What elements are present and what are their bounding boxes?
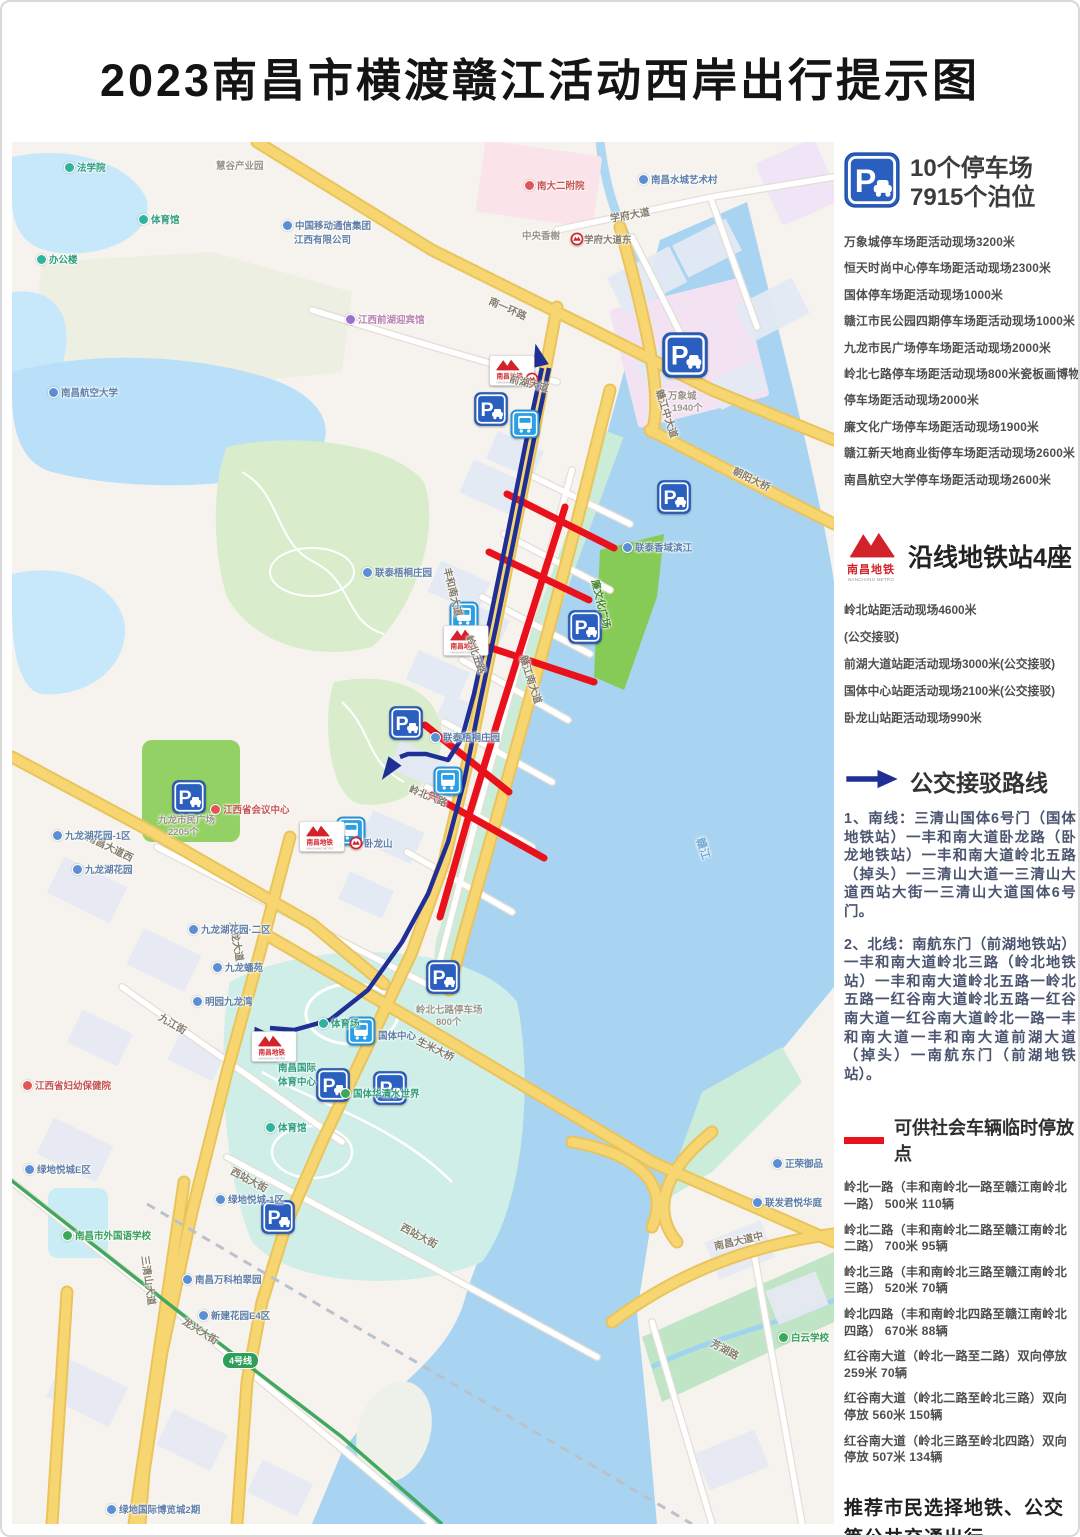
poi-dot-icon — [64, 162, 75, 173]
landmark-label: 九龙湖花园 — [72, 862, 133, 876]
poi-dot-icon — [345, 314, 356, 325]
temp-parking-item: 岭北一路（丰和南岭北一路至赣江南岭北一路） 500米 110辆 — [844, 1179, 1076, 1212]
landmark-label: 联泰梧桐庄园 — [362, 565, 432, 579]
parking-list-item: 九龙市民广场停车场距活动现场2000米 — [844, 335, 1076, 361]
temp-parking-item: 岭北二路（丰和南岭北二路至赣江南岭北二路） 700米 95辆 — [844, 1222, 1076, 1255]
parking-list-item: 赣江新天地商业街停车场距活动现场2600米 — [844, 440, 1076, 466]
bus-section: 公交接驳路线 1、南线：三清山国体6号门（国体地铁站）一丰和南大道卧龙路（卧龙地… — [844, 764, 1076, 1084]
red-line-icon — [844, 1137, 884, 1144]
metro-line-badge: 4号线 — [222, 1352, 259, 1369]
svg-text:P: P — [671, 341, 689, 371]
map-parking-icon: P — [426, 960, 460, 999]
svg-text:南昌地铁: 南昌地铁 — [307, 837, 334, 846]
landmark-label: 白云学校 — [778, 1330, 829, 1344]
landmark-label: 南昌市外国语学校 — [62, 1228, 151, 1242]
poi-dot-icon — [282, 220, 293, 231]
metro-list-item: 卧龙山站距活动现场990米 — [844, 705, 1076, 732]
landmark-label: 体育中心 — [278, 1074, 316, 1088]
landmark-label: 国体华清水世界 — [340, 1086, 420, 1100]
landmark-label: 江西省妇幼保健院 — [22, 1078, 111, 1092]
svg-text:P: P — [433, 967, 446, 989]
temp-parking-item: 红谷南大道（岭北一路至二路）双向停放 259米 70辆 — [844, 1348, 1076, 1381]
landmark-label: 南昌航空大学 — [48, 385, 118, 399]
metro-list-item: (公交接驳) — [844, 624, 1076, 651]
road-label: 丰和南大道 — [441, 566, 468, 618]
svg-text:P: P — [664, 487, 677, 509]
map-bus-stop-icon — [510, 409, 540, 444]
landmark-label: 学府大道东 — [584, 232, 632, 246]
road-label: 九江街 — [156, 1009, 189, 1037]
poi-dot-icon — [62, 1230, 73, 1241]
parking-list: 万象城停车场距活动现场3200米恒天时尚中心停车场距活动现场2300米国体停车场… — [844, 229, 1076, 493]
poi-dot-icon — [772, 1158, 783, 1169]
parking-sign-icon: P — [844, 152, 900, 213]
map-parking-icon: P — [657, 480, 691, 519]
landmark-label: 九龙湖花园-1区 — [52, 828, 130, 842]
poi-dot-icon — [52, 830, 63, 841]
metro-logo-en: NANCHANG METRO — [844, 576, 898, 583]
landmark-label: 南大二附院 — [524, 178, 585, 192]
poi-dot-icon — [192, 996, 203, 1007]
map-overlay: P P P P P P P P P P 南昌地铁 NANCHANG METRO … — [12, 142, 834, 1524]
bus-route-list: 1、南线：三清山国体6号门（国体地铁站）一丰和南大道卧龙路（卧龙地铁站）一丰和南… — [844, 810, 1076, 1084]
parking-list-item: 廉文化广场停车场距活动现场1900米 — [844, 414, 1076, 440]
landmark-label: 体育场 — [318, 1016, 360, 1030]
svg-text:P: P — [179, 787, 192, 809]
road-label: 朝阳大桥 — [731, 463, 774, 494]
landmark-label: 中国移动通信集团 — [282, 218, 371, 232]
parking-list-item: 恒天时尚中心停车场距活动现场2300米 — [844, 255, 1076, 281]
map: P P P P P P P P P P 南昌地铁 NANCHANG METRO … — [12, 142, 834, 1524]
landmark-label: 绿地悦城-1区 — [215, 1192, 284, 1206]
landmark-label: 联泰香域滨江 — [622, 540, 692, 554]
parking-list-item: 万象城停车场距活动现场3200米 — [844, 229, 1076, 255]
map-metro-station-icon — [570, 232, 584, 251]
temp-parking-item: 岭北三路（丰和南岭北三路至赣江南岭北三路） 520米 70辆 — [844, 1264, 1076, 1297]
svg-text:NANCHANG METRO: NANCHANG METRO — [307, 846, 335, 850]
parking-list-item: 岭北七路停车场距活动现场800米瓷板画博物馆 — [844, 361, 1076, 387]
map-parking-icon: P — [474, 392, 508, 431]
metro-list-item: 前湖大道站距活动现场3000米(公交接驳) — [844, 651, 1076, 678]
map-metro-logo-icon: 南昌地铁 NANCHANG METRO — [299, 821, 345, 857]
landmark-label: 新建花园E4区 — [198, 1308, 270, 1322]
poi-dot-icon — [36, 254, 47, 265]
road-label: 赣江 — [692, 836, 714, 862]
svg-text:P: P — [575, 617, 588, 639]
map-parking-icon: P — [389, 706, 423, 745]
poi-dot-icon — [778, 1332, 789, 1343]
bus-route: 1、南线：三清山国体6号门（国体地铁站）一丰和南大道卧龙路（卧龙地铁站）一丰和南… — [844, 810, 1076, 922]
landmark-label: 江西前湖迎宾馆 — [345, 312, 425, 326]
svg-text:P: P — [323, 1075, 336, 1097]
page-title: 2023南昌市横渡赣江活动西岸出行提示图 — [2, 44, 1078, 109]
road-label: 赣江南大道 — [517, 653, 547, 705]
landmark-label: 800个 — [436, 1014, 461, 1028]
svg-text:P: P — [855, 163, 877, 199]
poi-dot-icon — [430, 732, 441, 743]
road-label: 南昌大道中 — [712, 1227, 764, 1253]
parking-section-header: P 10个停车场 7915个泊位 — [844, 152, 1076, 213]
landmark-label: 1940个 — [672, 400, 703, 414]
metro-section: 南昌地铁 NANCHANG METRO 沿线地铁站4座 岭北站距活动现场4600… — [844, 529, 1076, 732]
landmark-label: 南昌万科柏翠园 — [182, 1272, 262, 1286]
landmark-label: 办公楼 — [36, 252, 78, 266]
landmark-label: 2205个 — [168, 824, 199, 838]
parking-list-item: 赣江市民公园四期停车场距活动现场1000米 — [844, 308, 1076, 334]
metro-list-item: 国体中心站距活动现场2100米(公交接驳) — [844, 678, 1076, 705]
temp-parking-section: 可供社会车辆临时停放点 岭北一路（丰和南岭北一路至赣江南岭北一路） 500米 1… — [844, 1114, 1076, 1465]
landmark-label: 江西省会议中心 — [210, 802, 290, 816]
poi-dot-icon — [524, 180, 535, 191]
poi-dot-icon — [182, 1274, 193, 1285]
road-label: 南一环路 — [487, 293, 530, 323]
landmark-label: 联泰梧桐庄园 — [430, 730, 500, 744]
landmark-label: 中央香榭 — [522, 228, 560, 242]
bus-route: 2、北线：南航东门（前湖地铁站）一丰和南大道岭北三路（岭北地铁站）一丰和南大道岭… — [844, 936, 1076, 1085]
landmark-label: 体育馆 — [265, 1120, 307, 1134]
svg-text:P: P — [268, 1207, 281, 1229]
temp-parking-list: 岭北一路（丰和南岭北一路至赣江南岭北一路） 500米 110辆岭北二路（丰和南岭… — [844, 1179, 1076, 1465]
landmark-label: 九龙蟠苑 — [212, 960, 263, 974]
temp-parking-item: 岭北四路（丰和南岭北四路至赣江南岭北四路） 670米 88辆 — [844, 1306, 1076, 1339]
landmark-label: 江西有限公司 — [294, 232, 351, 246]
nanchang-metro-logo: 南昌地铁 NANCHANG METRO — [844, 529, 898, 583]
road-label: 芳湖路 — [708, 1335, 742, 1362]
landmark-label: 体育馆 — [138, 212, 180, 226]
landmark-label: 绿地悦城E区 — [24, 1162, 91, 1176]
svg-text:南昌地铁: 南昌地铁 — [259, 1047, 286, 1056]
metro-logo-cn: 南昌地铁 — [844, 565, 898, 576]
landmark-label: 南昌国际 — [278, 1060, 316, 1074]
parking-list-item: 停车场距活动现场2000米 — [844, 387, 1076, 413]
poi-dot-icon — [752, 1197, 763, 1208]
poi-dot-icon — [198, 1310, 209, 1321]
bus-heading: 公交接驳路线 — [910, 764, 1048, 798]
poi-dot-icon — [638, 174, 649, 185]
landmark-label: 绿地国际博览城2期 — [106, 1502, 200, 1516]
svg-text:P: P — [481, 399, 494, 421]
poi-dot-icon — [48, 387, 59, 398]
poi-dot-icon — [22, 1080, 33, 1091]
map-parking-icon: P — [662, 332, 708, 383]
landmark-label: 明园九龙湾 — [192, 994, 253, 1008]
parking-heading: 10个停车场 7915个泊位 — [910, 154, 1035, 212]
poi-dot-icon — [72, 864, 83, 875]
landmark-label: 正荣御品 — [772, 1156, 823, 1170]
poi-dot-icon — [318, 1018, 329, 1029]
map-metro-station-icon — [349, 836, 363, 855]
road-label: 生米大桥 — [415, 1033, 458, 1064]
poster: 2023南昌市横渡赣江活动西岸出行提示图 — [0, 0, 1080, 1537]
landmark-label: 南昌水城艺术村 — [638, 172, 718, 186]
parking-list-item: 南昌航空大学停车场距活动现场2600米 — [844, 467, 1076, 493]
blue-arrow-icon — [844, 768, 900, 795]
landmark-label: 国体中心 — [378, 1028, 416, 1042]
recommendation-note: 推荐市民选择地铁、公交等公共交通出行 — [844, 1494, 1076, 1537]
poi-dot-icon — [622, 542, 633, 553]
poi-dot-icon — [212, 962, 223, 973]
metro-list: 岭北站距活动现场4600米(公交接驳)前湖大道站距活动现场3000米(公交接驳)… — [844, 597, 1076, 732]
poi-dot-icon — [340, 1088, 351, 1099]
poi-dot-icon — [106, 1504, 117, 1515]
poi-dot-icon — [24, 1164, 35, 1175]
landmark-label: 联发君悦华庭 — [752, 1195, 822, 1209]
temp-parking-item: 红谷南大道（岭北二路至岭北三路）双向停放 560米 150辆 — [844, 1390, 1076, 1423]
landmark-label: 九龙湖花园·二区 — [188, 922, 271, 936]
landmark-label: 慧谷产业园 — [216, 158, 264, 172]
road-label: 三清山大道 — [139, 1254, 161, 1306]
poi-dot-icon — [215, 1194, 226, 1205]
landmark-label: 法学院 — [64, 160, 106, 174]
metro-list-item: 岭北站距活动现场4600米 — [844, 597, 1076, 624]
poi-dot-icon — [362, 567, 373, 578]
road-label: 西站大街 — [228, 1163, 270, 1195]
svg-text:P: P — [396, 713, 409, 735]
metro-heading: 沿线地铁站4座 — [908, 538, 1072, 574]
poi-dot-icon — [265, 1122, 276, 1133]
parking-list-item: 国体停车场距活动现场1000米 — [844, 282, 1076, 308]
road-label: 西站大街 — [398, 1219, 440, 1251]
poi-dot-icon — [138, 214, 149, 225]
info-panel: P 10个停车场 7915个泊位 万象城停车场距活动现场3200米恒天时尚中心停… — [844, 152, 1076, 1537]
road-label: 学府大道 — [609, 203, 651, 225]
poi-dot-icon — [188, 924, 199, 935]
temp-parking-heading: 可供社会车辆临时停放点 — [894, 1114, 1076, 1166]
landmark-label: 卧龙山 — [364, 836, 393, 850]
temp-parking-item: 红谷南大道（岭北三路至岭北四路）双向停放 507米 134辆 — [844, 1433, 1076, 1466]
